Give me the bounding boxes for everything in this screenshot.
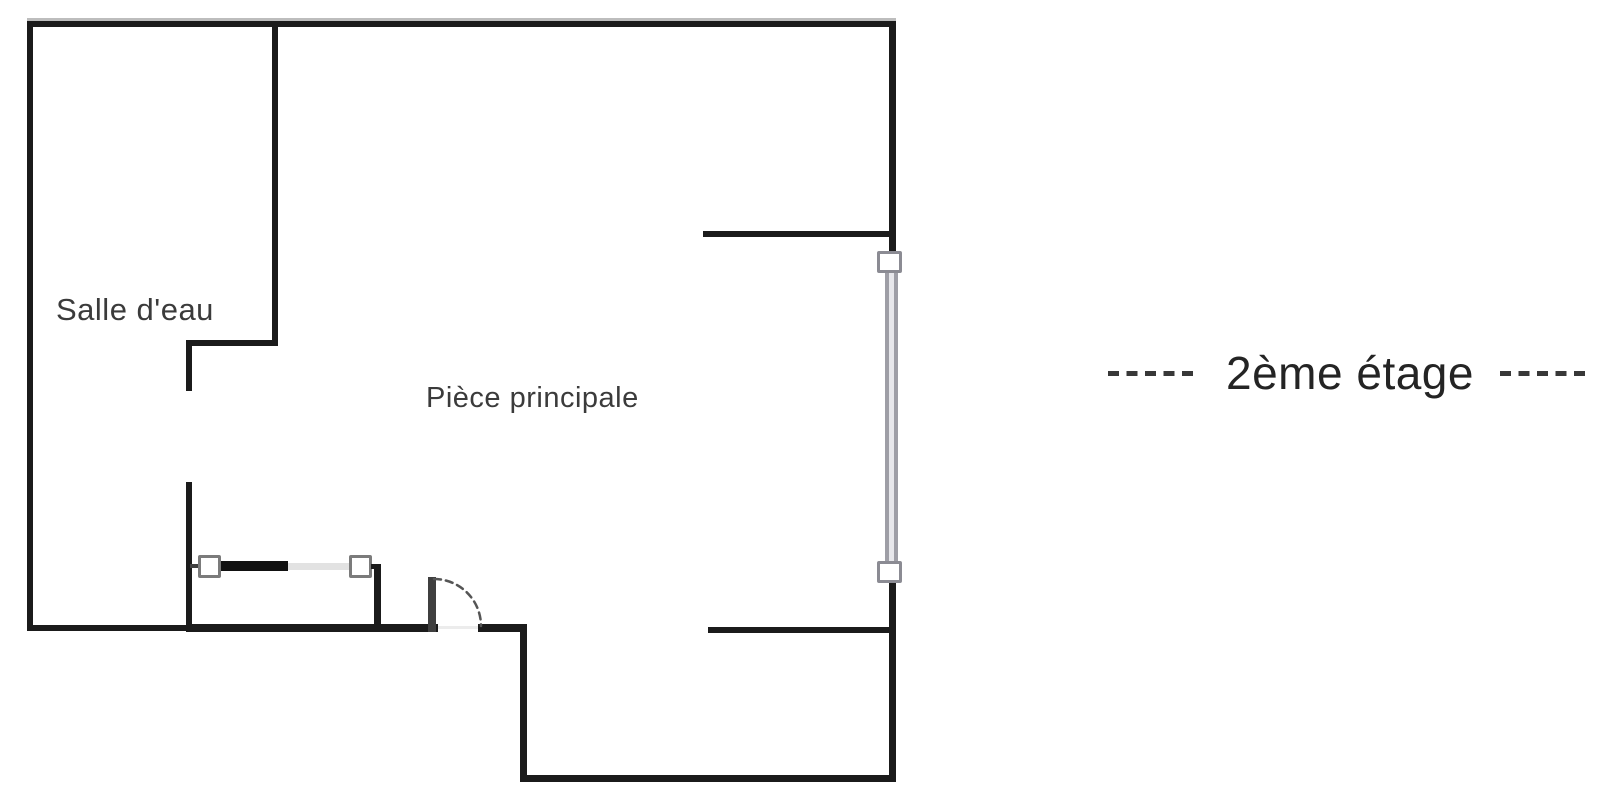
door-opening-sill	[438, 626, 478, 629]
sliding-door-track	[288, 563, 351, 570]
wall-salle-vertical-upper	[186, 340, 192, 391]
wall-partial-bottom-right	[708, 627, 893, 633]
wall-bay-left	[520, 624, 527, 782]
wall-bottom-middle	[186, 624, 438, 632]
wall-outer-right-lower	[889, 581, 896, 782]
sliding-door-square-left	[198, 555, 221, 578]
floor-label-row: 2ème étage	[1100, 338, 1600, 408]
dash-line-left	[1108, 371, 1200, 376]
wall-partial-top-right	[703, 231, 896, 237]
wall-outer-left	[27, 21, 33, 631]
window-cap-bottom	[877, 561, 902, 583]
sliding-door-panel	[221, 561, 288, 571]
wall-bay-bottom	[520, 775, 896, 782]
door-jamb	[428, 577, 436, 632]
window-glazing	[885, 272, 898, 562]
wall-outer-bottom-left	[27, 625, 192, 631]
wall-partition-vertical-top	[272, 21, 278, 346]
wall-salle-horizontal	[186, 340, 278, 346]
sliding-door-square-right	[349, 555, 372, 578]
window-cap-top	[877, 251, 902, 273]
floor-label: 2ème étage	[1226, 346, 1474, 400]
dash-line-right	[1500, 371, 1592, 376]
closet-wall-vertical	[374, 564, 381, 632]
room-label-piece-principale: Pièce principale	[426, 382, 639, 415]
wall-outer-top	[27, 21, 896, 27]
room-label-salle-deau: Salle d'eau	[56, 292, 214, 328]
wall-outer-right-upper	[889, 21, 896, 254]
floor-plan-canvas: Salle d'eau Pièce principale 2ème étage	[0, 0, 1600, 800]
wall-salle-vertical-lower	[186, 482, 192, 631]
